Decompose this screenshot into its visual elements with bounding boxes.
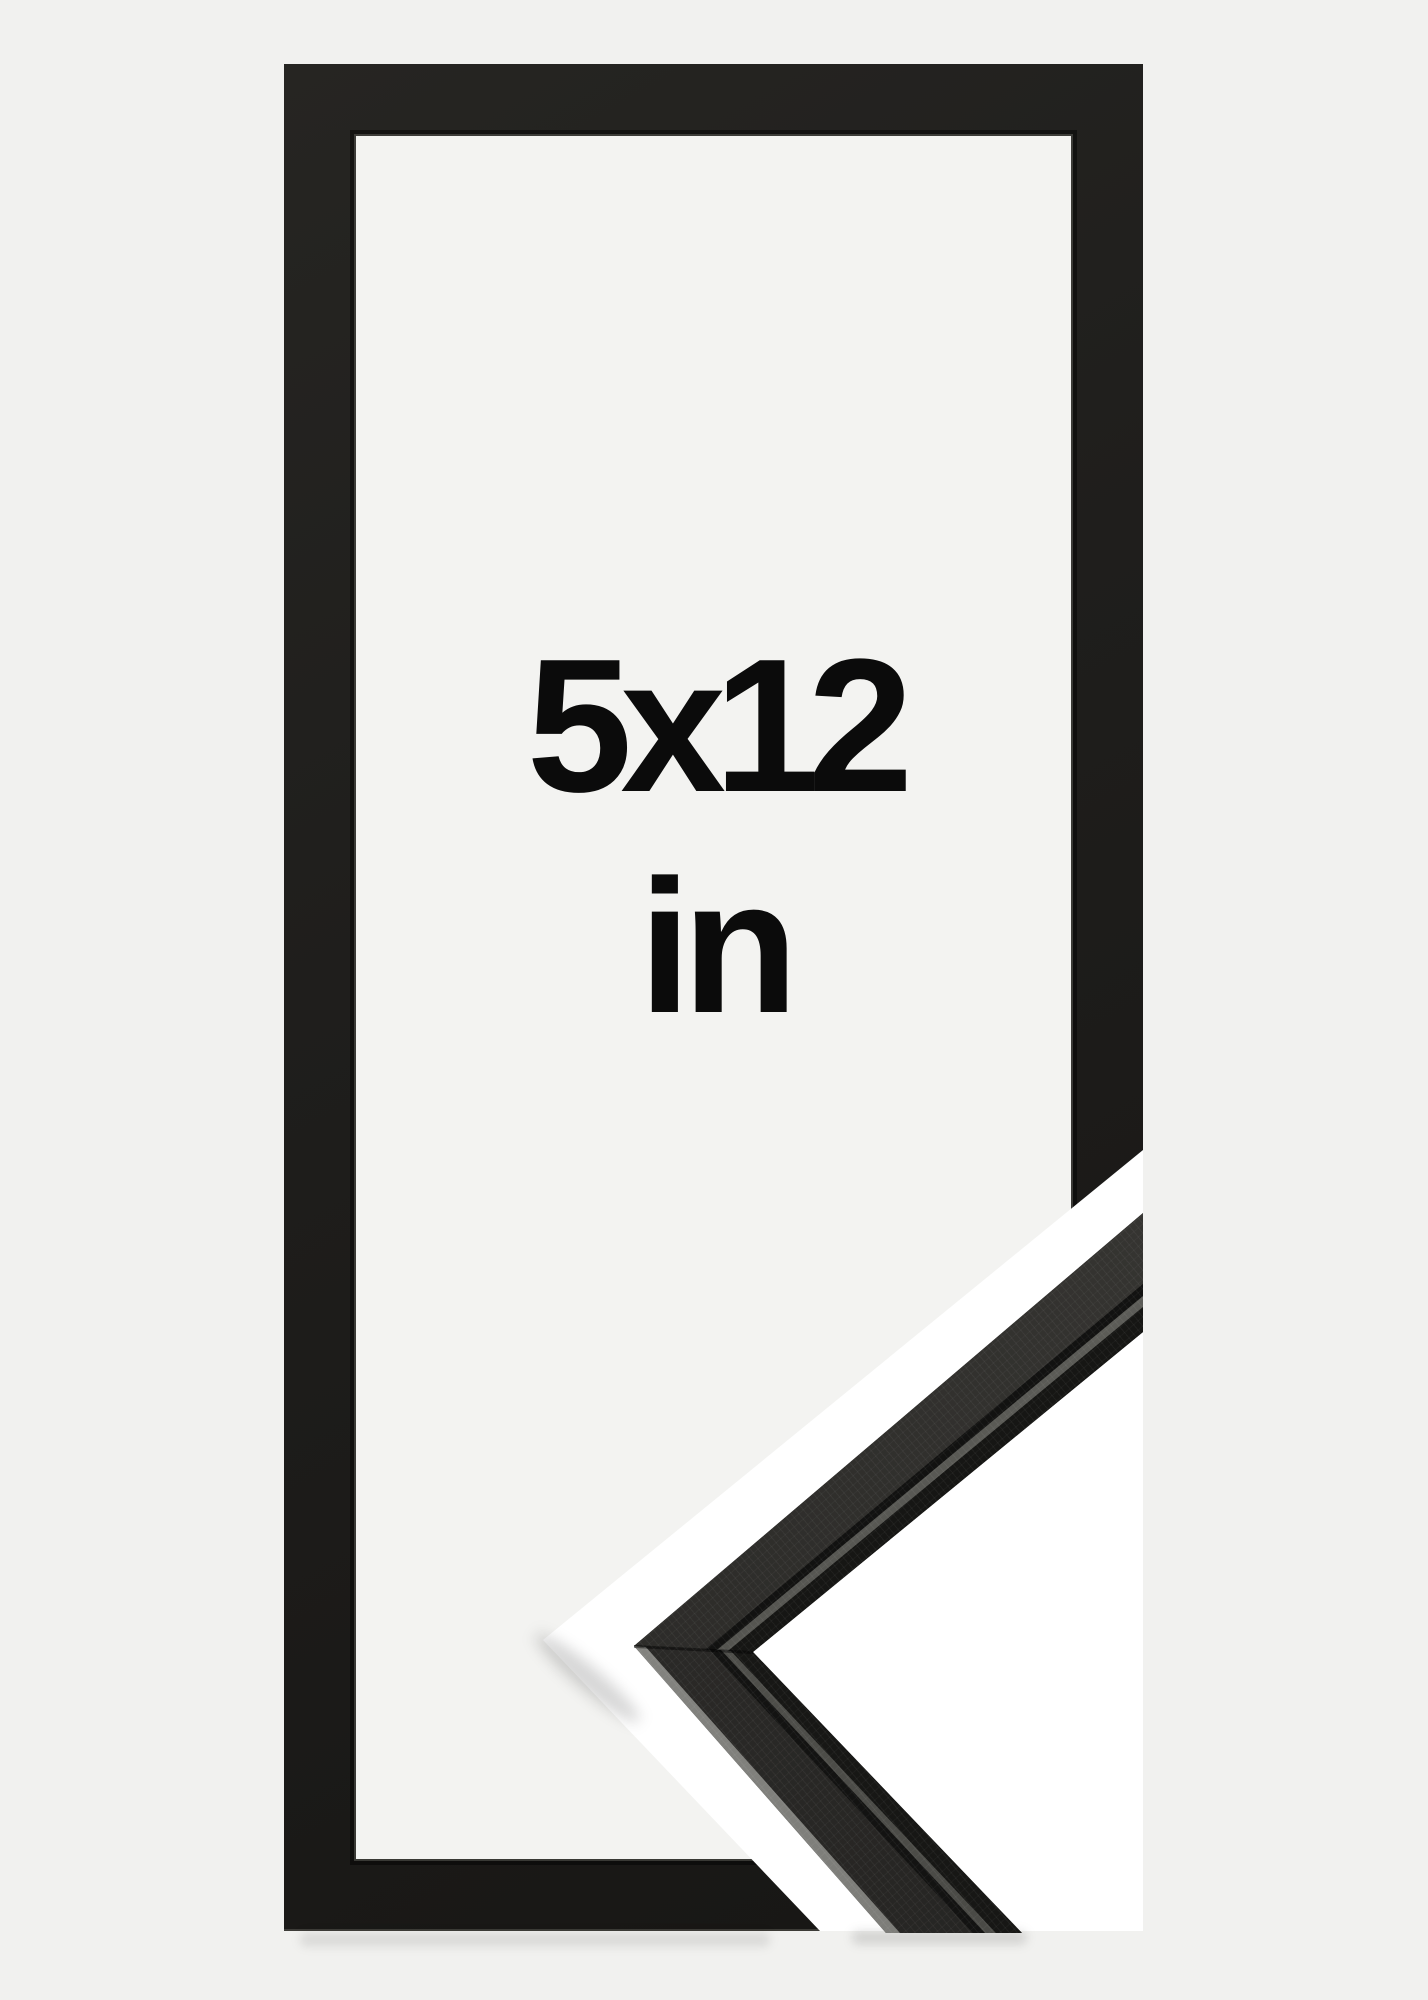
size-label: 5x12 (356, 646, 1072, 806)
frame-bottom-shadow (300, 1933, 770, 1946)
frame-product-image: 5x12 in (0, 0, 1428, 2000)
unit-label: in (356, 867, 1072, 1027)
